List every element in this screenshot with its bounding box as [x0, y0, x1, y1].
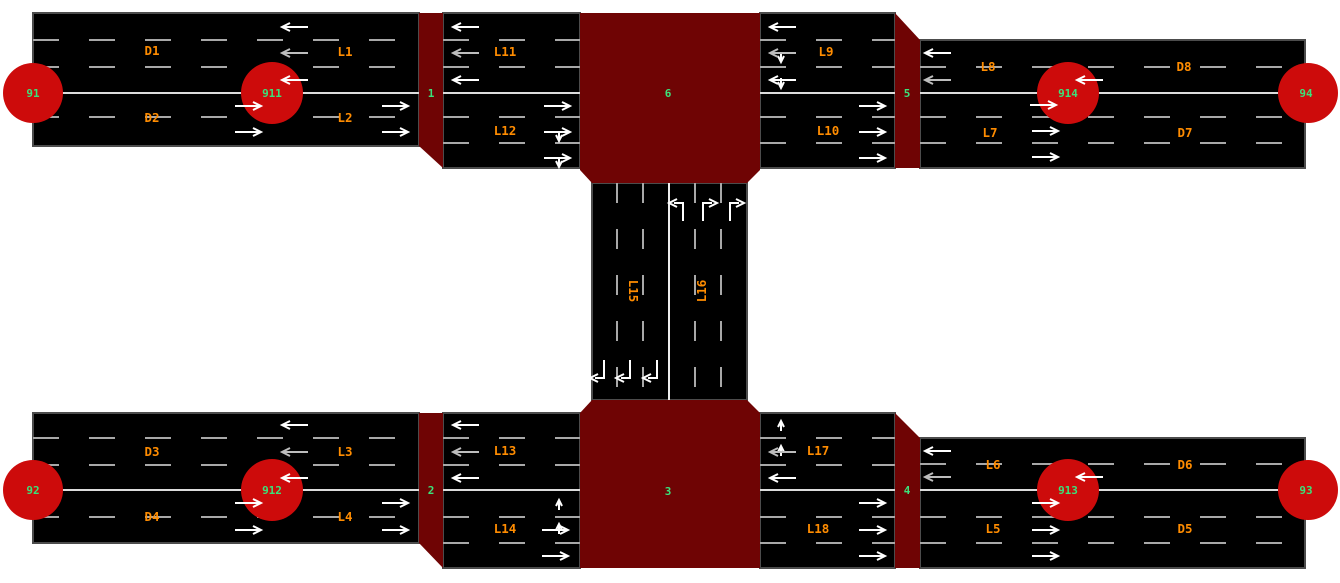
- origin-node-914-label: 914: [1058, 87, 1078, 100]
- lane-label-L10: L10: [817, 123, 840, 138]
- lane-label-L3: L3: [337, 444, 352, 459]
- junction-3-shape[interactable]: [580, 400, 760, 568]
- road-edge-j4-913-93[interactable]: [920, 438, 1305, 568]
- lane-label-D3: D3: [144, 444, 159, 459]
- road-edge-91-911-1[interactable]: [33, 13, 419, 146]
- lane-label-L2: L2: [337, 110, 352, 125]
- origin-node-93-label: 93: [1299, 484, 1312, 497]
- traffic-network-canvas: 91 911 914 94 92 912 913 93 1 6 5 2 3 4 …: [0, 0, 1340, 583]
- origin-node-94-label: 94: [1299, 87, 1313, 100]
- origin-node-911-label: 911: [262, 87, 282, 100]
- lane-label-L9: L9: [818, 44, 833, 59]
- lane-label-L8: L8: [980, 59, 995, 74]
- lane-label-L7: L7: [982, 125, 997, 140]
- road-edge-j5-914-94[interactable]: [920, 40, 1305, 168]
- lane-label-L6: L6: [985, 457, 1000, 472]
- lane-label-L15: L15: [626, 280, 641, 303]
- origin-node-913-label: 913: [1058, 484, 1078, 497]
- junction-4-label: 4: [904, 484, 911, 497]
- lane-label-D8: D8: [1176, 59, 1191, 74]
- lane-label-D6: D6: [1177, 457, 1192, 472]
- junction-5-label: 5: [904, 87, 911, 100]
- lane-label-L13: L13: [494, 443, 517, 458]
- road-edge-j6-j5[interactable]: [760, 13, 895, 168]
- origin-node-91-label: 91: [26, 87, 40, 100]
- junction-1-label: 1: [428, 87, 435, 100]
- lane-label-D7: D7: [1177, 125, 1192, 140]
- lane-label-L1: L1: [337, 44, 352, 59]
- road-edge-92-912-2[interactable]: [33, 413, 419, 543]
- lane-label-L14: L14: [494, 521, 517, 536]
- lane-label-L17: L17: [807, 443, 830, 458]
- lane-label-D2: D2: [144, 110, 159, 125]
- junction-2-label: 2: [428, 484, 435, 497]
- origin-node-912-label: 912: [262, 484, 282, 497]
- lane-label-L16: L16: [694, 280, 709, 303]
- junction-3-label: 3: [665, 485, 672, 498]
- lane-label-L5: L5: [985, 521, 1000, 536]
- origin-node-92-label: 92: [26, 484, 39, 497]
- lane-label-L18: L18: [807, 521, 830, 536]
- road-edge-j1-j6[interactable]: [443, 13, 580, 168]
- lane-label-L11: L11: [494, 44, 517, 59]
- lane-label-D1: D1: [144, 43, 159, 58]
- junction-6-label: 6: [665, 87, 672, 100]
- lane-label-D4: D4: [144, 509, 159, 524]
- lane-label-D5: D5: [1177, 521, 1192, 536]
- lane-label-L4: L4: [337, 509, 352, 524]
- lane-label-L12: L12: [494, 123, 517, 138]
